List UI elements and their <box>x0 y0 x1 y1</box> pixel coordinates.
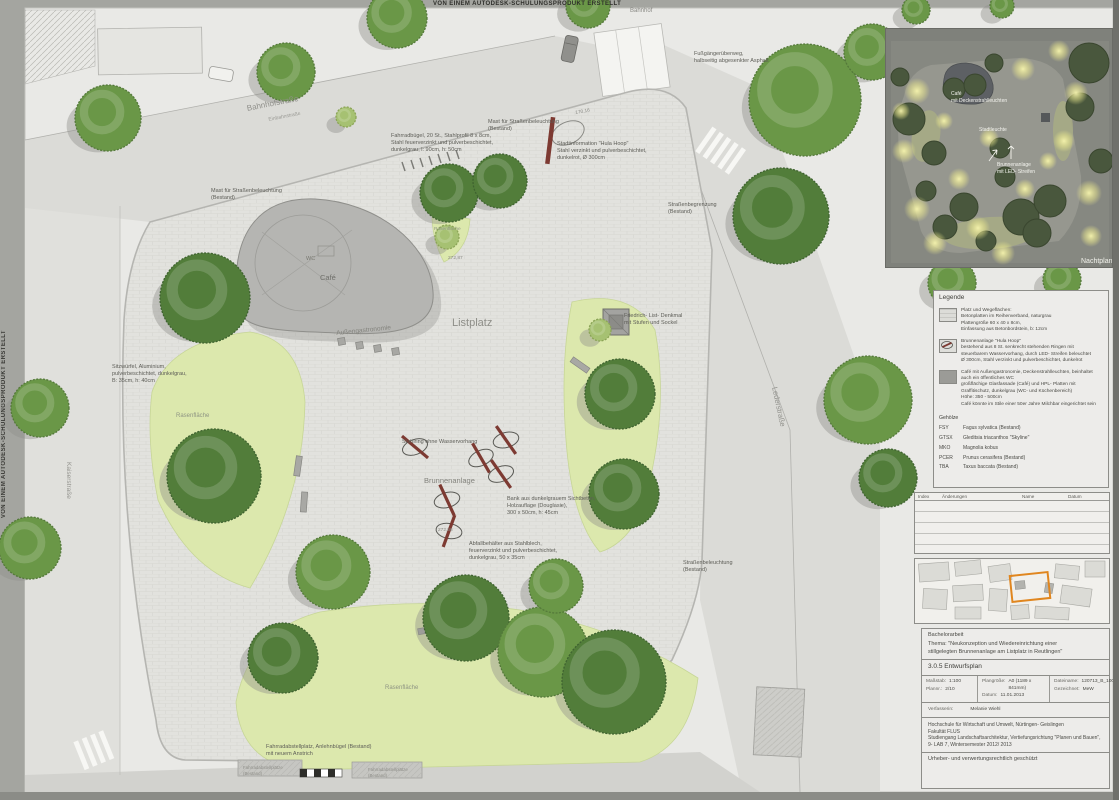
revision-row <box>915 523 1109 534</box>
author-row: Verfasserin: Melanie Wiehl <box>922 704 1109 717</box>
revision-row <box>915 501 1109 512</box>
species-name: Prunus cerasifera (Bestand) <box>963 455 1103 462</box>
plan-name: 3.0.5 Entwurfsplan <box>922 660 1109 676</box>
canvas-edge-right <box>1113 0 1119 800</box>
revision-table-header: Index Änderungen Name Datum <box>915 493 1109 501</box>
bike-parking-west <box>238 760 302 776</box>
institution: Hochschule für Wirtschaft und Umwelt, Nü… <box>922 719 1109 753</box>
field-label: Plangröße: <box>982 679 1005 692</box>
revision-table: Index Änderungen Name Datum <box>914 492 1110 554</box>
legend-swatch-paving-icon <box>939 308 957 322</box>
field-label: Dateiname: <box>1054 679 1079 685</box>
copyright-note: Urheber- und verwertungsrechtlich geschü… <box>922 753 1109 766</box>
autodesk-watermark-left: VON EINEM AUTODESK-SCHULUNGSPRODUKT ERST… <box>1 330 7 518</box>
species-list: FSYFagus sylvatica (Bestand) GTSXGledits… <box>939 425 1103 471</box>
night-label-cafe: Café mit Deckenstrahlleuchten <box>951 91 1013 104</box>
revision-row <box>915 534 1109 545</box>
species-code: FSY <box>939 425 963 432</box>
field-label: Maßstab: <box>926 679 946 685</box>
parking-stalls <box>594 24 670 97</box>
species-code: GTSX <box>939 435 963 442</box>
building-footprint <box>98 27 203 75</box>
field-value: MeW <box>1083 687 1094 693</box>
project-type: Bachelorarbeit <box>928 632 1103 639</box>
field-label: Gezeichnet: <box>1054 687 1080 693</box>
bike-parking-east <box>352 762 422 778</box>
species-name: Fagus sylvatica (Bestand) <box>963 425 1103 432</box>
legend-species-title: Gehölze <box>939 415 1103 422</box>
legend-title: Legende <box>939 294 1103 303</box>
revision-row <box>915 512 1109 523</box>
legend-entry-paving: Platz und Wegeflächen: Betonplatten im R… <box>939 308 1103 334</box>
species-code: MKO <box>939 445 963 452</box>
location-map-drawing <box>915 559 1109 623</box>
species-code: PCER <box>939 455 963 462</box>
legend-entry-fountain: Brunnenanlage "Hula Hoop" bestehend aus … <box>939 339 1103 365</box>
author-name: Melanie Wiehl <box>970 707 1000 713</box>
autodesk-watermark-top: VON EINEM AUTODESK-SCHULUNGSPRODUKT ERST… <box>433 1 621 7</box>
species-name: Magnolia kobus <box>963 445 1103 452</box>
legend-swatch-building-icon <box>939 370 957 384</box>
night-labels-layer: Café mit DeckenstrahlleuchtenStadtleucht… <box>886 29 1113 268</box>
drawing-sheet: BahnhofstraßeEinbahnstraßeListplatzLeder… <box>0 0 1119 800</box>
location-map <box>914 558 1110 624</box>
title-block-project: Bachelorarbeit Thema: "Neukonzeption und… <box>922 629 1109 660</box>
field-value: 1:100 <box>949 679 961 685</box>
field-value: 11.01.2013 <box>1000 693 1024 699</box>
field-value: A0 (1189 x 841mm) <box>1008 679 1045 692</box>
title-block: Bachelorarbeit Thema: "Neukonzeption und… <box>921 628 1110 789</box>
canvas-edge-bottom <box>0 792 1119 800</box>
legend-entry-cafe: Café mit Außengastronomie, Deckenstrahll… <box>939 370 1103 409</box>
author-label: Verfasserin: <box>928 707 953 713</box>
night-label-stadtleuchte: Stadtleuchte <box>979 127 1029 134</box>
field-value: 120713_B_100 <box>1082 679 1115 685</box>
night-label-brunnenanlage: Brunnenanlage mit LED- Streifen <box>997 162 1055 175</box>
night-inset-title: Nachtplan <box>1081 257 1113 266</box>
field-label: Datum: <box>982 693 997 699</box>
species-name: Gleditsia triacanthos "Skyline" <box>963 435 1103 442</box>
structure-hatched <box>753 687 804 757</box>
street-west <box>25 206 120 792</box>
species-code: TBA <box>939 464 963 471</box>
species-name: Taxus baccata (Bestand) <box>963 464 1103 471</box>
legend-panel: Legende Platz und Wegeflächen: Betonplat… <box>933 290 1109 488</box>
field-label: Plannr.: <box>926 687 942 693</box>
field-value: 2/10 <box>945 687 954 693</box>
scale-bar <box>300 769 342 777</box>
plan-meta-grid: Maßstab:1:100 Plannr.:2/10 Plangröße:A0 … <box>922 676 1109 703</box>
project-thema: Thema: "Neukonzeption und Wiedereinricht… <box>928 641 1103 656</box>
nachtplan-inset: Café mit DeckenstrahlleuchtenStadtleucht… <box>885 28 1113 268</box>
legend-swatch-fountain-ring-icon <box>939 339 957 353</box>
